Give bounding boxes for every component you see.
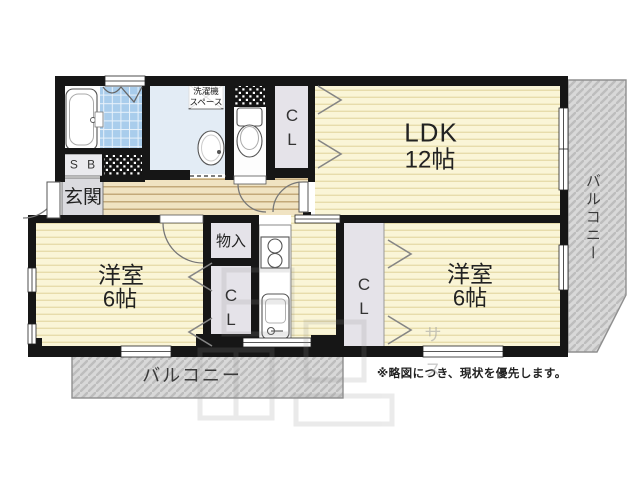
washbasin-icon <box>198 131 224 165</box>
closet-top-line1: C <box>286 104 298 128</box>
watermark-char-1: サ <box>425 321 442 346</box>
bathroom-tile-floor <box>100 86 142 148</box>
window-western-right <box>559 245 568 290</box>
western-left-size-label: 6帖 <box>103 287 137 310</box>
washer-space-label: 洗濯機 スペース <box>189 86 224 108</box>
entrance-label: 玄関 <box>64 188 102 208</box>
pipe-space-toilet <box>232 84 266 106</box>
disclaimer-note: ※略図につき、現状を優先します。 <box>377 365 567 381</box>
closet-mid-line2: L <box>225 308 237 332</box>
window-left-2 <box>28 324 36 344</box>
western-right-label: 洋室 <box>447 262 493 286</box>
closet-right-label: C L <box>358 273 370 321</box>
closet-mid-line1: C <box>225 284 237 308</box>
watermark-char-2: ス <box>425 356 442 381</box>
closet-top-line2: L <box>286 128 298 152</box>
closet-top-label: C L <box>286 104 298 152</box>
toilet-icon <box>237 108 262 157</box>
pipe-space-left <box>103 154 145 176</box>
window-bottom-left-room <box>121 346 171 357</box>
stove-icon <box>261 237 289 268</box>
western-right-size-label: 6帖 <box>453 286 487 309</box>
floor-plan: LDK 12帖 洋室 6帖 洋室 6帖 C L C L C L 物入 玄関 S … <box>0 0 640 480</box>
closet-right-line1: C <box>358 273 370 297</box>
window-bottom-kitchen <box>243 338 311 347</box>
window-bath-top <box>105 76 145 86</box>
western-left-label: 洋室 <box>98 263 144 287</box>
balcony-right-label: バルコニー <box>584 173 600 263</box>
storage-label: 物入 <box>216 234 246 250</box>
opening-above-counter <box>295 215 340 223</box>
bathtub-icon <box>66 89 103 150</box>
washer-space-line2: スペース <box>190 97 223 108</box>
washer-space-line1: 洗濯機 <box>190 86 223 97</box>
closet-mid-label: C L <box>225 284 237 332</box>
balcony-bottom-label: バルコニー <box>142 367 242 386</box>
floor-plan-drawing <box>0 0 640 480</box>
ldk-label: LDK <box>404 119 458 146</box>
window-ldk-right <box>559 108 568 190</box>
entrance-door <box>23 182 60 218</box>
closet-right-line2: L <box>358 297 370 321</box>
shoe-box-label: S B <box>70 159 98 172</box>
ldk-size-label: 12帖 <box>405 147 456 172</box>
window-left-1 <box>28 268 36 292</box>
